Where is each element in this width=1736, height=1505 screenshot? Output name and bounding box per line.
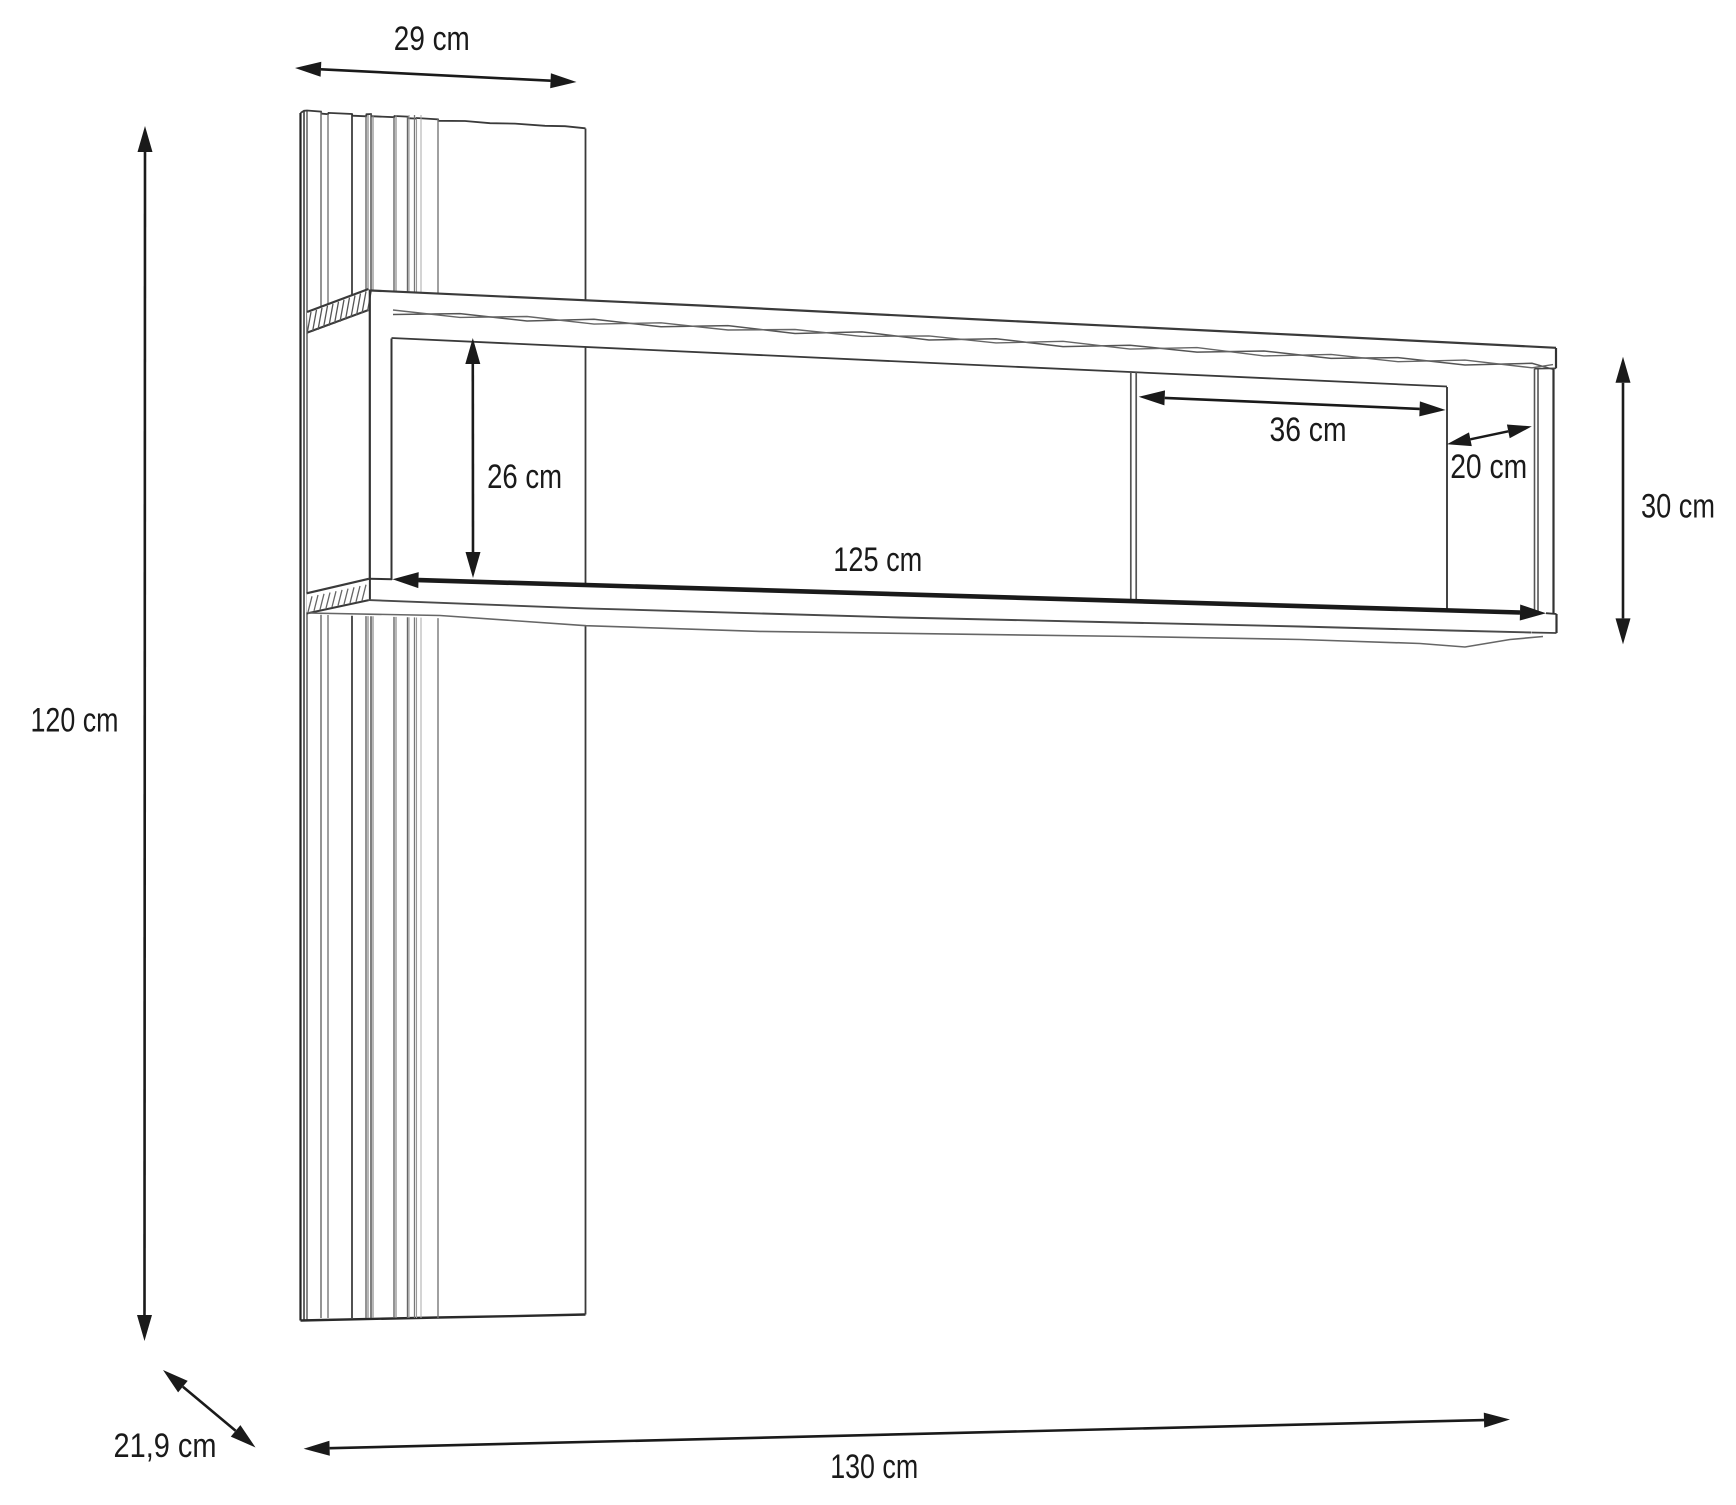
svg-text:125 cm: 125 cm bbox=[833, 541, 922, 579]
svg-text:26 cm: 26 cm bbox=[487, 458, 562, 496]
svg-text:29 cm: 29 cm bbox=[394, 20, 470, 58]
svg-text:120 cm: 120 cm bbox=[31, 702, 119, 740]
svg-text:36 cm: 36 cm bbox=[1270, 411, 1347, 449]
svg-text:130 cm: 130 cm bbox=[830, 1448, 918, 1486]
svg-text:20 cm: 20 cm bbox=[1450, 448, 1527, 486]
svg-text:30 cm: 30 cm bbox=[1641, 488, 1715, 526]
svg-text:21,9 cm: 21,9 cm bbox=[114, 1427, 217, 1465]
